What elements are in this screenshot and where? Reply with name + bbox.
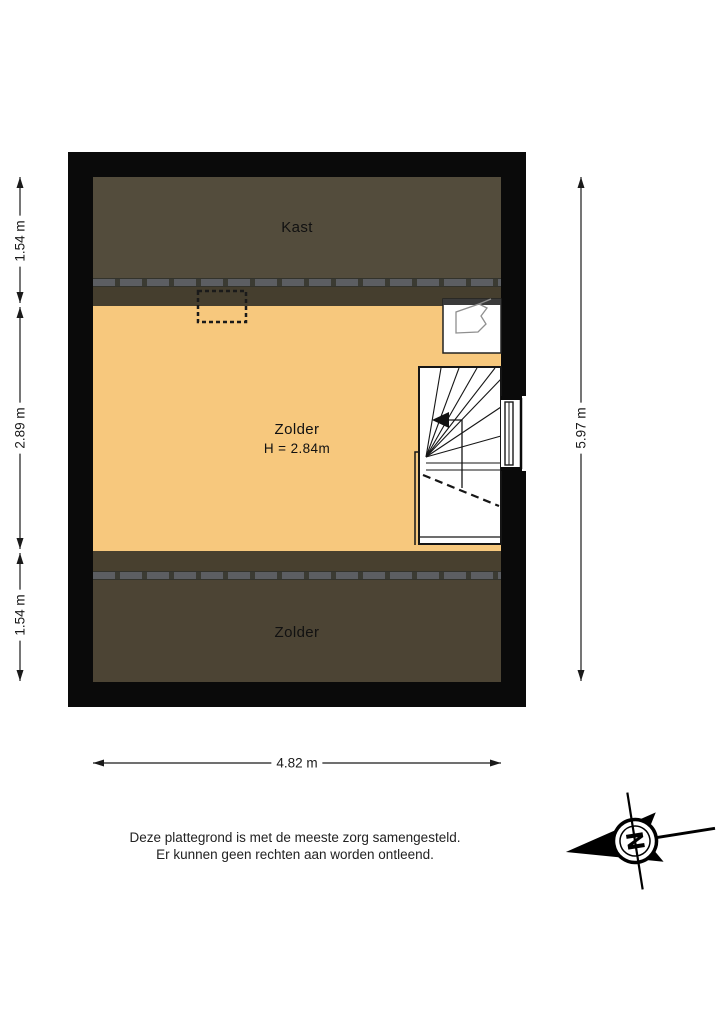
dimension-label-left-top: 1.54 m [13,215,28,266]
dimension-label-left-bottom: 1.54 m [13,589,28,640]
disclaimer: Deze plattegrond is met de meeste zorg s… [35,829,555,863]
room-label-zolder-middle: Zolder [93,421,501,438]
dimension-label-bottom: 4.82 m [271,756,322,771]
headroom-dashed-line-bottom [93,571,501,580]
room-label-zolder-bottom: Zolder [93,624,501,641]
dimension-label-left-middle: 2.89 m [13,402,28,453]
knee-wall-strip-bottom [93,551,501,571]
disclaimer-line1: Deze plattegrond is met de meeste zorg s… [35,829,555,846]
compass-icon: N [558,780,722,900]
floorplan-canvas: N Kast Zolder H = 2.84m Zolder 1.54 m 2.… [0,0,724,1024]
compass-north-letter: N [620,830,649,853]
room-label-kast: Kast [93,219,501,236]
headroom-dashed-line-top [93,278,501,287]
knee-wall-strip-top [93,287,501,306]
dimension-label-right: 5.97 m [574,402,589,453]
room-height-label: H = 2.84m [93,441,501,456]
disclaimer-line2: Er kunnen geen rechten aan worden ontlee… [35,846,555,863]
